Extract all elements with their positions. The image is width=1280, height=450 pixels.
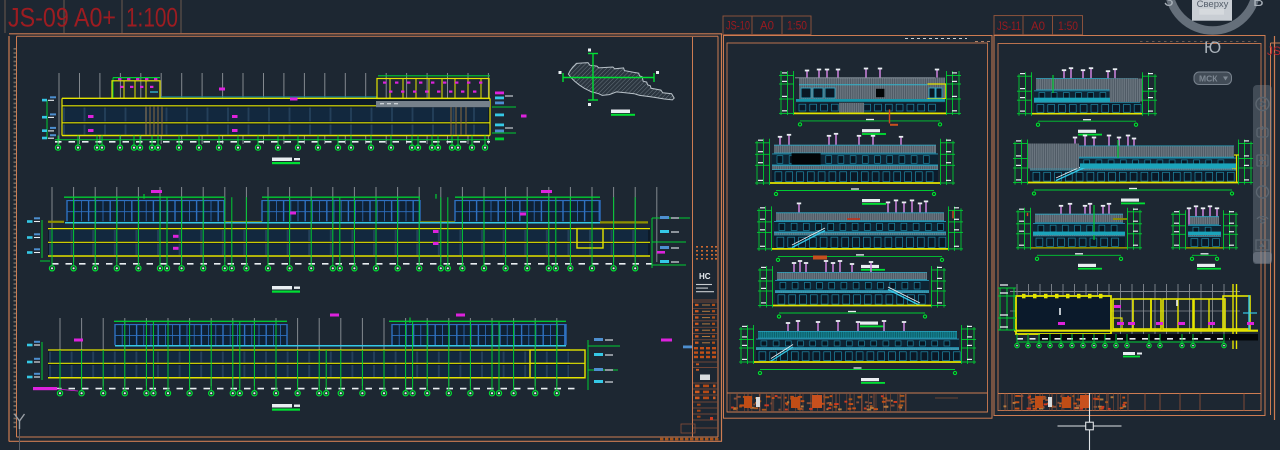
- svg-text:JS-: JS-: [1267, 44, 1280, 58]
- svg-text:JS-11: JS-11: [997, 21, 1021, 33]
- svg-text:HC: HC: [699, 272, 711, 281]
- svg-text:1:50: 1:50: [1058, 21, 1078, 33]
- svg-text:1:50: 1:50: [787, 21, 807, 33]
- svg-text:В: В: [1253, 0, 1264, 10]
- svg-text:A0: A0: [760, 21, 774, 33]
- svg-text:Сверху: Сверху: [1197, 0, 1229, 10]
- svg-text:JS-10: JS-10: [726, 21, 750, 33]
- svg-text:Ю: Ю: [1204, 38, 1221, 57]
- svg-text:З: З: [1164, 0, 1174, 10]
- svg-text:МСК: МСК: [1199, 74, 1218, 84]
- svg-text:JS-09 A0+: JS-09 A0+: [8, 3, 116, 33]
- svg-text:A0: A0: [1031, 21, 1045, 33]
- svg-text:1:100: 1:100: [126, 3, 178, 33]
